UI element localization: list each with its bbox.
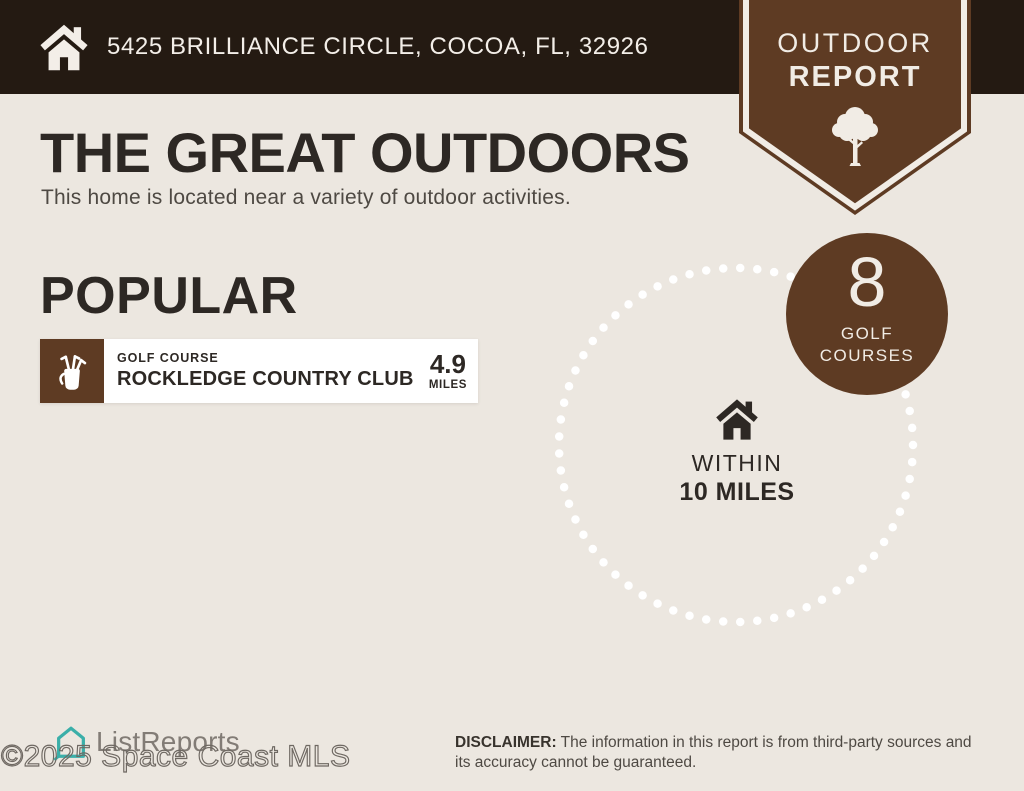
poi-distance-value: 4.9 <box>430 351 466 377</box>
disclaimer-label: DISCLAIMER: <box>455 734 557 751</box>
within-label: WITHIN <box>637 450 837 477</box>
radius-distance-label: 10 MILES <box>637 478 837 507</box>
golf-course-count-badge: 8 GOLF COURSES <box>786 233 948 395</box>
disclaimer: DISCLAIMER: The information in this repo… <box>455 733 991 773</box>
course-count: 8 <box>848 247 887 317</box>
count-badge-label1: GOLF <box>841 324 893 344</box>
poi-text: GOLF COURSE ROCKLEDGE COUNTRY CLUB <box>104 339 414 403</box>
outdoor-report-ribbon: OUTDOOR REPORT <box>739 0 971 216</box>
poi-name: ROCKLEDGE COUNTRY CLUB <box>117 368 414 391</box>
poi-distance: 4.9 MILES <box>429 339 478 403</box>
page-subtitle: This home is located near a variety of o… <box>41 186 571 210</box>
tree-icon <box>827 104 883 170</box>
ribbon-title-line2: REPORT <box>739 61 971 94</box>
count-badge-label2: COURSES <box>820 346 915 366</box>
poi-category: GOLF COURSE <box>117 351 414 365</box>
radius-center-info: WITHIN 10 MILES <box>637 398 837 507</box>
ribbon-title-line1: OUTDOOR <box>739 28 971 59</box>
popular-heading: POPULAR <box>40 266 298 326</box>
poi-distance-unit: MILES <box>429 379 467 391</box>
property-address: 5425 BRILLIANCE CIRCLE, COCOA, FL, 32926 <box>107 33 649 61</box>
outdoor-report-page: 5425 BRILLIANCE CIRCLE, COCOA, FL, 32926… <box>0 0 1024 791</box>
mls-watermark: ©2025 Space Coast MLS <box>1 740 350 774</box>
golf-bag-icon <box>52 351 92 391</box>
poi-icon-box <box>40 339 104 403</box>
poi-card-golf-course: GOLF COURSE ROCKLEDGE COUNTRY CLUB 4.9 M… <box>40 339 478 403</box>
house-icon <box>38 23 90 72</box>
house-icon <box>714 398 760 441</box>
page-title: THE GREAT OUTDOORS <box>40 120 690 185</box>
